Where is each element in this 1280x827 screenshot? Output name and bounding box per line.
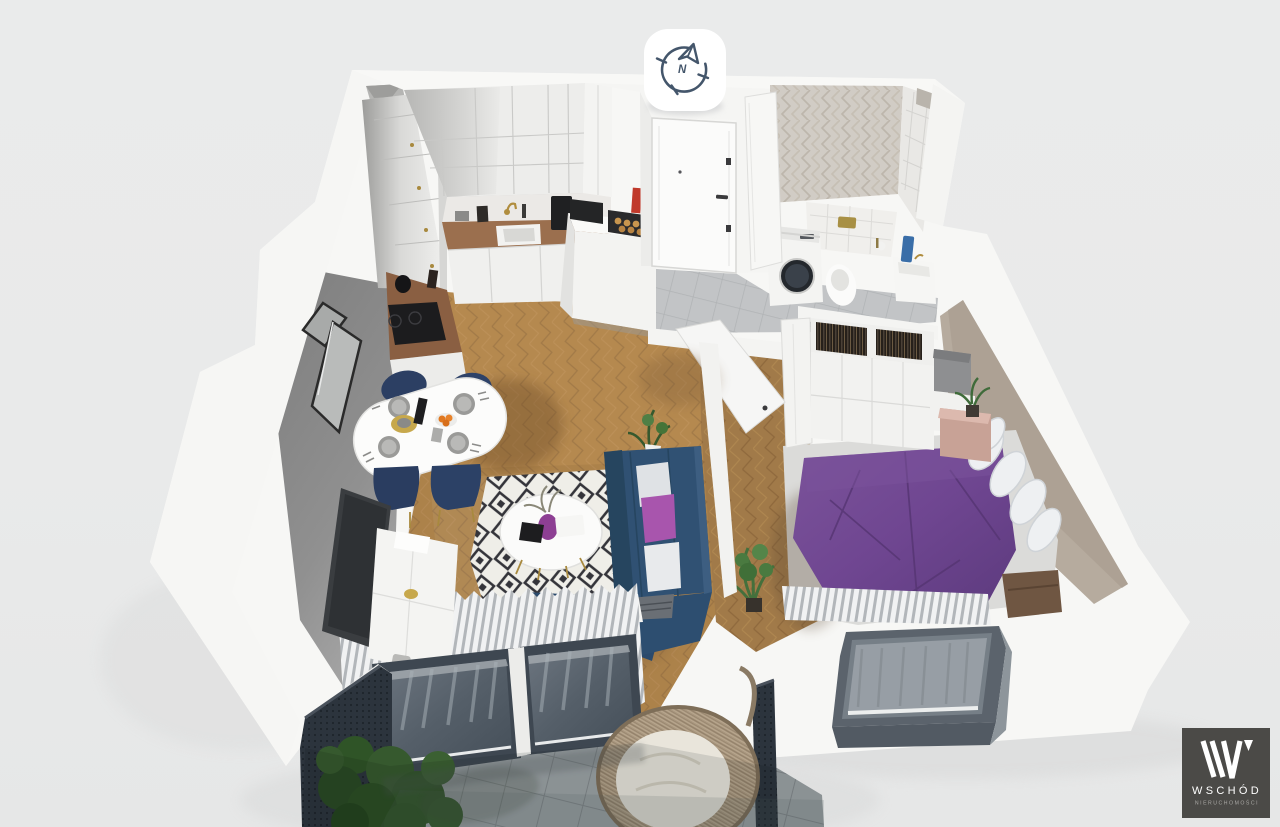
svg-text:WSCHÓD: WSCHÓD bbox=[1192, 784, 1262, 797]
svg-text:N: N bbox=[678, 64, 687, 76]
svg-text:NIERUCHOMOŚCI: NIERUCHOMOŚCI bbox=[1195, 799, 1259, 807]
